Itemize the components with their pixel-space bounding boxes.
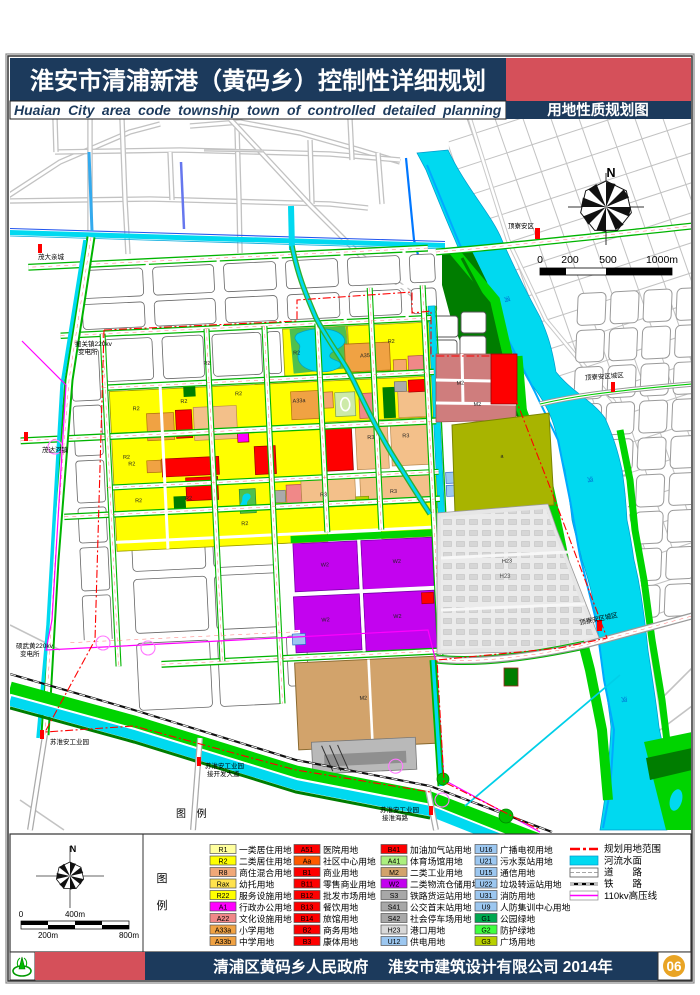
svg-text:B12: B12 [301,893,314,900]
svg-text:400m: 400m [65,910,85,919]
svg-text:R1: R1 [219,847,228,854]
svg-text:W2: W2 [321,617,330,623]
svg-text:R2: R2 [135,498,142,504]
svg-text:B13: B13 [301,905,314,912]
svg-text:二类居住用地: 二类居住用地 [239,856,292,867]
svg-text:G2: G2 [481,928,490,935]
svg-text:小学用地: 小学用地 [239,925,274,936]
svg-text:1000m: 1000m [646,254,678,266]
svg-text:S3: S3 [390,893,399,900]
svg-text:人防集训中心用地: 人防集训中心用地 [500,902,571,913]
svg-text:R2: R2 [133,406,140,412]
svg-text:Aa: Aa [303,859,312,866]
svg-text:H23: H23 [388,928,401,935]
svg-text:U12: U12 [388,939,401,946]
svg-text:R3: R3 [402,433,409,439]
svg-text:清浦区黄码乡人民政府 淮安市建筑设计有限公司 2014年: 清浦区黄码乡人民政府 淮安市建筑设计有限公司 2014年 [213,957,613,976]
svg-text:旅馆用地: 旅馆用地 [323,913,358,924]
svg-text:110kv高压线: 110kv高压线 [604,890,658,902]
svg-text:公交首末站用地: 公交首末站用地 [410,902,472,913]
svg-text:图: 图 [157,872,168,885]
svg-text:M2: M2 [389,870,399,877]
svg-text:顶寮安区: 顶寮安区 [508,221,535,230]
svg-text:R3: R3 [367,435,374,441]
svg-text:R2: R2 [293,350,300,356]
svg-text:体育场馆用地: 体育场馆用地 [410,856,463,867]
svg-text:B41: B41 [388,847,401,854]
svg-text:S41: S41 [388,905,401,912]
svg-text:河流水面: 河流水面 [604,855,642,867]
svg-text:R2: R2 [388,339,395,345]
svg-text:幼托用地: 幼托用地 [239,879,274,890]
svg-text:商业用地: 商业用地 [323,867,358,878]
svg-text:A33a: A33a [215,928,231,935]
svg-text:例: 例 [157,898,168,912]
svg-text:A33a: A33a [292,398,306,405]
svg-text:A1: A1 [219,905,228,912]
svg-text:垃圾转运站用地: 垃圾转运站用地 [500,879,562,890]
svg-text:康体用地: 康体用地 [323,936,358,947]
svg-text:M2: M2 [473,402,481,408]
svg-text:广播电视用地: 广播电视用地 [500,844,553,855]
svg-text:图 例: 图 例 [176,807,211,820]
svg-text:G3: G3 [481,939,490,946]
svg-text:U9: U9 [482,905,491,912]
svg-text:茂达河镇: 茂达河镇 [42,445,69,454]
svg-text:N: N [70,844,77,854]
svg-text:B14: B14 [301,916,314,923]
svg-text:批发市场用地: 批发市场用地 [323,890,376,901]
svg-text:N: N [606,166,615,180]
svg-text:R2: R2 [235,391,242,397]
svg-text:R2: R2 [123,455,130,461]
svg-text:广场用地: 广场用地 [500,936,535,947]
svg-text:U31: U31 [480,893,493,900]
svg-text:W2: W2 [393,614,402,620]
svg-text:商住混合用地: 商住混合用地 [239,867,292,878]
svg-text:R2: R2 [219,859,228,866]
svg-text:道 路: 道 路 [604,867,643,879]
svg-text:接开发大道: 接开发大道 [207,769,240,778]
svg-text:Rax: Rax [217,882,230,889]
svg-text:二类物流仓储用地: 二类物流仓储用地 [410,879,481,890]
svg-text:R8: R8 [219,870,228,877]
svg-text:G1: G1 [481,916,490,923]
svg-text:Huaian City area code township: Huaian City area code township town of c… [14,102,502,118]
svg-text:B2: B2 [303,928,312,935]
svg-text:接淮海路: 接淮海路 [382,813,409,822]
svg-text:U21: U21 [480,859,493,866]
svg-text:铁 路: 铁 路 [604,878,643,890]
svg-text:苏淮安工业园: 苏淮安工业园 [205,761,244,770]
svg-text:R2: R2 [203,361,210,367]
svg-text:200: 200 [561,254,579,266]
svg-text:变电所: 变电所 [78,347,98,356]
svg-text:硕武黄220kv: 硕武黄220kv [16,641,54,650]
svg-text:铁路货运站用地: 铁路货运站用地 [410,890,472,901]
svg-text:800m: 800m [119,931,139,940]
svg-text:W2: W2 [321,562,330,568]
svg-text:B11: B11 [301,882,313,889]
svg-text:R3: R3 [390,489,397,495]
svg-text:服务设施用地: 服务设施用地 [239,890,292,901]
svg-text:公园绿地: 公园绿地 [500,913,535,924]
svg-text:消防用地: 消防用地 [500,890,535,901]
svg-text:R2: R2 [180,399,187,405]
svg-text:变电所: 变电所 [20,649,40,658]
svg-text:二类工业用地: 二类工业用地 [410,867,463,878]
svg-text:搬关镇220kv: 搬关镇220kv [75,339,113,348]
svg-text:M2: M2 [456,380,464,386]
svg-text:医院用地: 医院用地 [323,844,358,855]
svg-text:加油加气站用地: 加油加气站用地 [410,844,472,855]
svg-text:A33b: A33b [215,939,231,946]
svg-text:苏淮安工业园: 苏淮安工业园 [380,805,419,814]
svg-text:规划用地范围: 规划用地范围 [604,843,661,855]
svg-text:S42: S42 [388,916,401,923]
svg-text:A41: A41 [388,859,401,866]
svg-text:06: 06 [666,959,682,974]
svg-text:苏淮安工业园: 苏淮安工业园 [50,737,89,746]
svg-text:R22: R22 [217,893,230,900]
svg-text:U15: U15 [480,870,493,877]
svg-text:200m: 200m [38,931,58,940]
svg-text:U22: U22 [480,882,493,889]
svg-text:污水泵站用地: 污水泵站用地 [500,856,553,867]
svg-text:一类居住用地: 一类居住用地 [239,844,292,855]
svg-text:中学用地: 中学用地 [239,936,274,947]
svg-text:A22: A22 [217,916,230,923]
svg-text:0: 0 [537,254,543,266]
svg-text:通信用地: 通信用地 [500,867,535,878]
svg-text:A51: A51 [301,847,314,854]
svg-text:文化设施用地: 文化设施用地 [239,913,292,924]
svg-text:B3: B3 [303,939,312,946]
svg-text:W2: W2 [389,882,400,889]
svg-text:防护绿地: 防护绿地 [500,925,535,936]
svg-text:0: 0 [19,910,24,919]
svg-text:R2: R2 [128,461,135,467]
svg-text:商务用地: 商务用地 [323,925,358,936]
svg-text:社会停车场用地: 社会停车场用地 [410,913,472,924]
svg-text:B1: B1 [303,870,312,877]
svg-text:H23: H23 [502,558,512,564]
svg-text:R2: R2 [241,521,248,527]
svg-text:W2: W2 [393,559,402,565]
svg-text:R3: R3 [320,492,327,498]
svg-text:供电用地: 供电用地 [410,936,445,947]
svg-text:M2: M2 [359,695,367,701]
svg-text:用地性质规划图: 用地性质规划图 [547,101,649,119]
svg-text:茂大亲城: 茂大亲城 [38,252,65,261]
svg-text:R2: R2 [185,496,192,502]
svg-text:行政办公用地: 行政办公用地 [239,902,292,913]
svg-text:H23: H23 [499,574,511,580]
svg-text:港口用地: 港口用地 [410,925,445,936]
svg-text:A35: A35 [360,353,370,359]
svg-text:社区中心用地: 社区中心用地 [323,856,376,867]
svg-text:500: 500 [599,254,617,266]
svg-text:零售商业用地: 零售商业用地 [323,879,376,890]
svg-text:淮安市清浦新港（黄码乡）控制性详细规划: 淮安市清浦新港（黄码乡）控制性详细规划 [30,67,486,95]
svg-text:餐饮用地: 餐饮用地 [323,902,358,913]
svg-text:U16: U16 [480,847,493,854]
